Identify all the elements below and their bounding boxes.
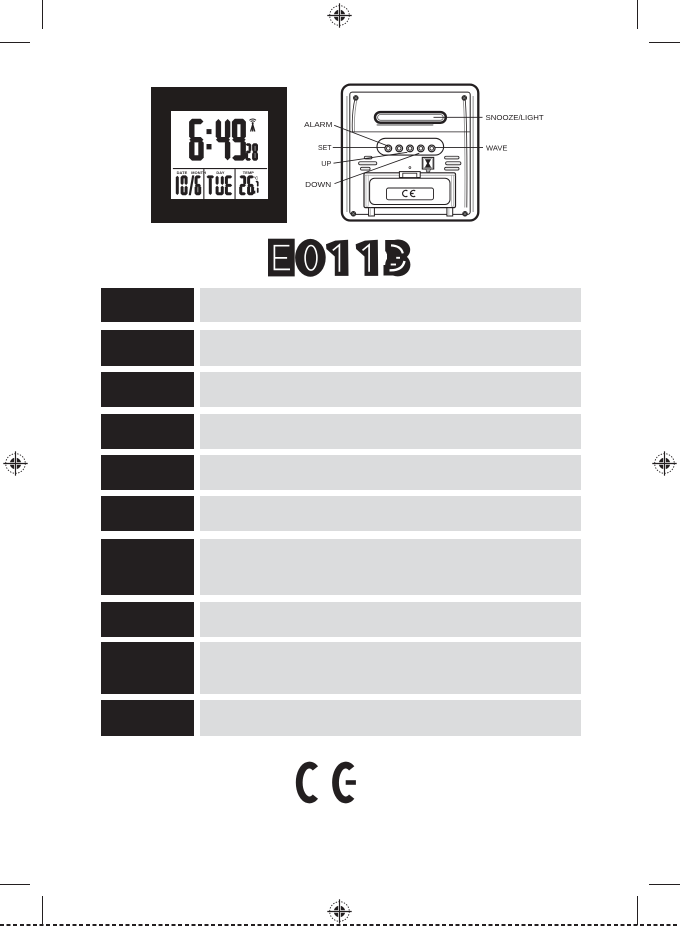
svg-text:DATE: DATE bbox=[177, 170, 188, 175]
svg-text:SNOOZE/LIGHT: SNOOZE/LIGHT bbox=[486, 113, 545, 122]
svg-text:WAVE: WAVE bbox=[486, 143, 507, 152]
svg-text:DOWN: DOWN bbox=[305, 180, 331, 189]
svg-text:SET: SET bbox=[318, 143, 332, 152]
svg-text:UP: UP bbox=[321, 159, 331, 168]
svg-text:MONTH: MONTH bbox=[191, 170, 206, 175]
svg-text:ALARM: ALARM bbox=[304, 120, 332, 129]
svg-text:DAY: DAY bbox=[216, 170, 224, 175]
svg-text:°C: °C bbox=[253, 175, 258, 180]
